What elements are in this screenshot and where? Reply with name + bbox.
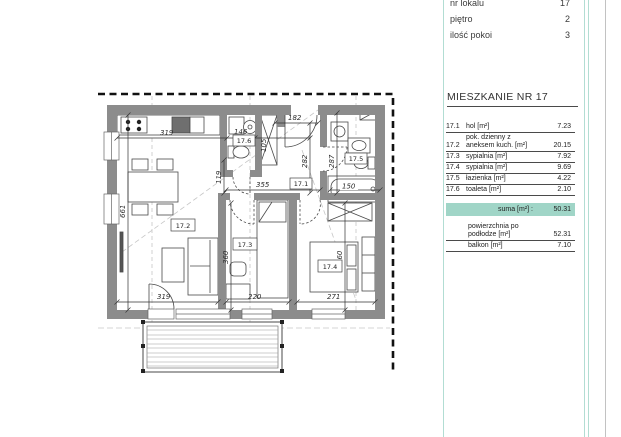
table-row: 17.3 sypialnia [m²] 7.92 [446, 152, 575, 163]
balcony-door [148, 309, 174, 319]
dim-kitchen-width: 319 [160, 129, 174, 137]
balcony [141, 320, 284, 373]
dim-bedroom-small-depth: 360 [222, 250, 230, 264]
info-value: 2 [565, 14, 570, 30]
extra-label: powierzchnia po podłodze [m²] [468, 223, 541, 238]
room-number: 17.6 [446, 186, 466, 194]
floor-plan-drawing: 319 146 105 182 282 287 150 661 119 355 … [0, 0, 443, 437]
extra-label: balkon [m²] [468, 242, 541, 250]
room-name: hol [m²] [466, 123, 541, 131]
room-area-table: 17.1 hol [m²] 7.23 17.2 pok. dzienny z a… [446, 122, 575, 196]
room-area: 20.15 [541, 142, 575, 150]
room-number: 17.2 [446, 142, 466, 150]
wardrobe-side [362, 237, 375, 291]
tv-board [120, 232, 123, 272]
label-bedroom-small: 17.3 [238, 241, 252, 249]
wc-tank [368, 157, 375, 169]
room-name-line2: aneksem kuch. [m²] [466, 142, 541, 150]
label-toilet: 17.6 [237, 137, 251, 145]
room-name: sypialnia [m²] [466, 164, 541, 172]
extra-value: 52.31 [541, 231, 575, 239]
living-room-furniture [120, 232, 218, 295]
info-label: nr lokalu [450, 0, 484, 14]
table-row: 17.5 łazienka [m²] 4.22 [446, 174, 575, 185]
dim-closet-depth: 105 [260, 138, 268, 152]
total-label: suma [m²] : [446, 206, 541, 213]
panel-border-right-outer [584, 0, 585, 437]
room-number: 17.5 [446, 175, 466, 183]
dim-living-depth: 661 [119, 205, 127, 218]
floor-plan-sheet: 319 146 105 182 282 287 150 661 119 355 … [0, 0, 621, 437]
room-number: 17.3 [446, 153, 466, 161]
room-name: toaleta [m²] [466, 186, 541, 194]
toilet-door [233, 177, 250, 194]
info-label: piętro [450, 14, 473, 30]
extra-label-line2: podłodze [m²] [468, 231, 541, 239]
table-row: powierzchnia po podłodze [m²] 52.31 [446, 222, 575, 241]
desk [226, 284, 250, 299]
desk-chair [230, 262, 246, 276]
sink-drainer [190, 117, 204, 133]
room-area: 4.22 [541, 175, 575, 183]
dim-bath-depth: 287 [328, 154, 336, 168]
room-name-line1: pok. dzienny z [466, 134, 541, 142]
panel-border-right-inner [588, 0, 589, 437]
unit-info: nr lokalu 17 piętro 2 ilość pokoi 3 [450, 0, 570, 46]
table-row: 17.6 toaleta [m²] 2.10 [446, 185, 575, 196]
chair [157, 159, 173, 170]
bedroom-door [300, 200, 320, 224]
room-name: pok. dzienny z aneksem kuch. [m²] [466, 134, 541, 149]
info-value: 3 [565, 30, 570, 46]
info-row-room-count: ilość pokoi 3 [450, 30, 570, 46]
panel-border-left [443, 0, 444, 437]
table-row: 17.2 pok. dzienny z aneksem kuch. [m²] 2… [446, 133, 575, 152]
room-number: 17.4 [446, 164, 466, 172]
table-row: 17.1 hol [m²] 7.23 [446, 122, 575, 133]
total-value: 50.31 [541, 206, 575, 213]
room-name: łazienka [m²] [466, 175, 541, 183]
label-living: 17.2 [176, 222, 190, 230]
room-area: 9.69 [541, 164, 575, 172]
sofa [188, 238, 218, 295]
room-area: 7.23 [541, 123, 575, 131]
dim-bathtub-length: 150 [342, 183, 356, 191]
label-bedroom: 17.4 [323, 263, 337, 271]
dim-hall-depth: 282 [301, 154, 309, 168]
dim-hall-width: 355 [256, 181, 270, 189]
table-row: balkon [m²] 7.10 [446, 241, 575, 252]
room-number: 17.1 [446, 123, 466, 131]
sheet-edge-line [605, 0, 606, 437]
chair [132, 159, 148, 170]
room-area: 2.10 [541, 186, 575, 194]
table-row: 17.4 sypialnia [m²] 9.69 [446, 163, 575, 174]
info-value: 17 [560, 0, 570, 14]
chair [157, 204, 173, 215]
coffee-table [162, 248, 184, 282]
bedroom-furniture [310, 203, 375, 292]
wc-bowl [233, 146, 249, 158]
sheet-title: MIESZKANIE NR 17 [447, 91, 578, 107]
room-area: 7.92 [541, 153, 575, 161]
dim-bedroom-width: 271 [327, 293, 340, 301]
dim-entry-width: 182 [288, 114, 302, 122]
info-row-floor: piętro 2 [450, 14, 570, 30]
pillow [347, 245, 356, 266]
pillow [259, 202, 286, 222]
label-bathroom: 17.5 [349, 155, 363, 163]
room-name: sypialnia [m²] [466, 153, 541, 161]
info-label: ilość pokoi [450, 30, 492, 46]
info-row-unit-number: nr lokalu 17 [450, 0, 570, 14]
label-hall: 17.1 [294, 180, 308, 188]
total-area-row: suma [m²] : 50.31 [446, 203, 575, 216]
dim-bedroom-small-width: 220 [248, 293, 262, 301]
kitchen-sink [172, 117, 190, 133]
chair [132, 204, 148, 215]
extra-label-line1: powierzchnia po [468, 223, 541, 231]
pillow [347, 269, 356, 290]
dining-table [128, 159, 178, 215]
extra-area-table: powierzchnia po podłodze [m²] 52.31 balk… [446, 222, 575, 252]
stove [121, 117, 147, 133]
dim-passage-width: 119 [215, 170, 223, 184]
extra-value: 7.10 [541, 242, 575, 250]
dim-living-width: 319 [157, 293, 171, 301]
